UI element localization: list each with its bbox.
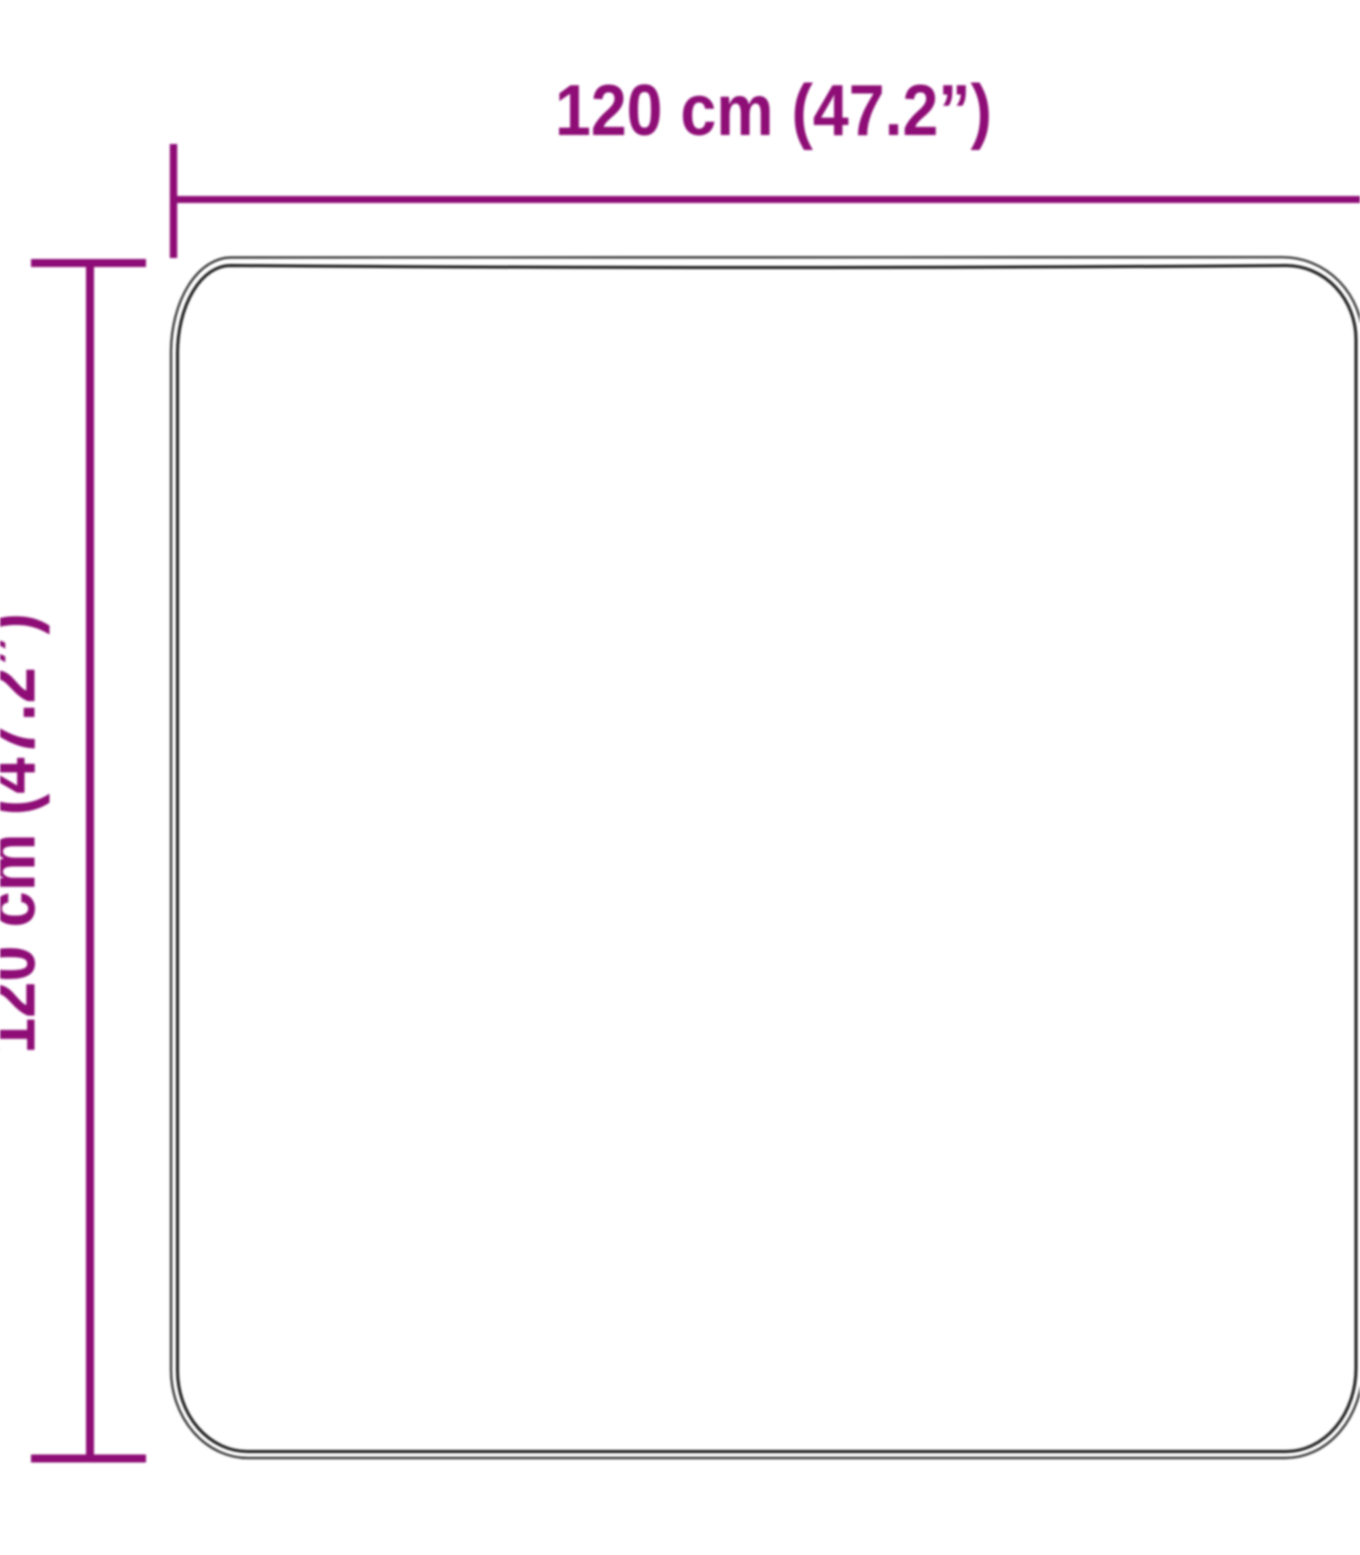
svg-text:120 cm (47.2”): 120 cm (47.2”)	[0, 613, 51, 1054]
svg-text:120 cm (47.2”): 120 cm (47.2”)	[555, 71, 992, 151]
